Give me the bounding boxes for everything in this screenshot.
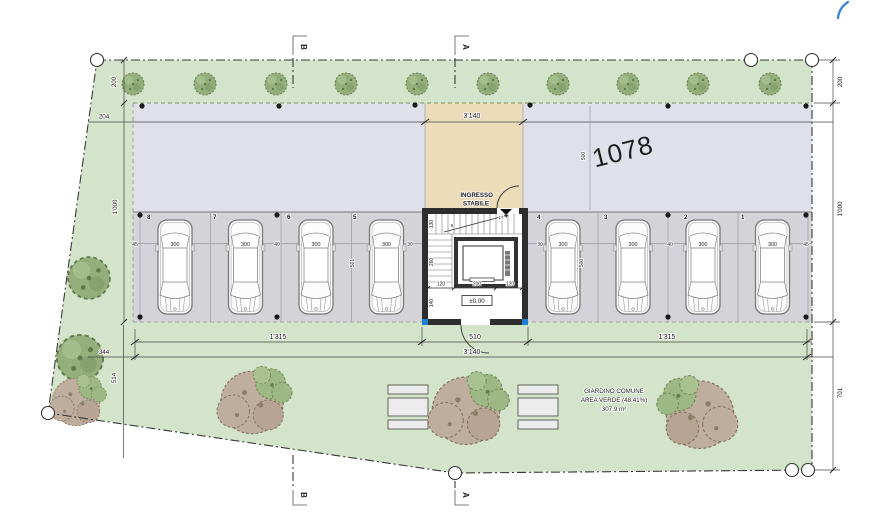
tree-icon xyxy=(194,73,216,95)
tree-icon xyxy=(687,73,709,95)
tree-icon xyxy=(122,73,144,95)
dim-bottom-mid: 510 xyxy=(469,334,481,341)
dim-bay-right: 500 xyxy=(579,259,585,268)
car-icon xyxy=(297,220,336,314)
garden-label-3: 307.9 m² xyxy=(602,406,626,413)
dim-left-depth: 1'000 xyxy=(112,199,119,215)
core-dim-row: 140 xyxy=(429,299,435,308)
stall-number: 1 xyxy=(741,214,745,221)
car-icon xyxy=(226,220,265,314)
dim-bottom-total: 3'140 xyxy=(464,349,481,356)
garden-label-2: AREA VERDE (48.41%) xyxy=(581,397,647,404)
dim-bottom-right: 1'315 xyxy=(659,334,676,341)
elevator-shaft xyxy=(456,239,516,286)
stall-width: 300 xyxy=(768,242,777,248)
gap-dim: 45 xyxy=(132,242,138,248)
core-dim-row: 130 xyxy=(429,220,435,229)
dim-plaza-depth: 500 xyxy=(581,152,587,161)
level-label: ±0.00 xyxy=(469,298,485,305)
gap-dim: 30 xyxy=(407,242,413,248)
tree-icon xyxy=(265,73,287,95)
section-b-bottom: B xyxy=(299,492,308,498)
car-icon xyxy=(684,220,723,314)
tree-icon xyxy=(68,257,110,299)
stall-width: 300 xyxy=(559,242,568,248)
survey-point-se xyxy=(522,319,528,325)
car-icon xyxy=(156,220,195,314)
tree-icon xyxy=(477,73,499,95)
stall-width: 300 xyxy=(699,242,708,248)
stall-number: 8 xyxy=(147,214,151,221)
blue-stroke-artifact xyxy=(838,2,848,18)
stall-width: 300 xyxy=(241,242,250,248)
car-icon xyxy=(544,220,583,314)
stall-number: 2 xyxy=(684,214,688,221)
car-icon xyxy=(614,220,653,314)
tree-icon xyxy=(759,73,781,95)
dim-344: 344 xyxy=(99,349,110,356)
section-a-top: A xyxy=(461,44,470,50)
dim-right-garden: 701 xyxy=(837,387,844,398)
core-dim-col: 200 xyxy=(473,282,482,288)
stall-number: 7 xyxy=(213,214,217,221)
tree-icon xyxy=(406,73,428,95)
dim-right-depth: 1'000 xyxy=(837,201,844,217)
tree-icon xyxy=(57,335,103,381)
dim-right-strip: 200 xyxy=(837,76,844,87)
dim-top-total: 3'140 xyxy=(464,113,481,120)
entrance-label-2: STABILE xyxy=(463,201,489,208)
gap-dim: 45 xyxy=(803,242,809,248)
stall-number: 4 xyxy=(537,214,541,221)
section-b-top: B xyxy=(299,44,308,50)
entrance-label-1: INGRESSO xyxy=(460,192,493,199)
gap-dim: 40 xyxy=(667,242,673,248)
stall-number: 6 xyxy=(287,214,291,221)
dim-bay-left: 501 xyxy=(350,259,356,268)
gap-dim: 30 xyxy=(537,242,543,248)
dim-left-strip: 200 xyxy=(111,76,118,87)
car-icon xyxy=(367,220,406,314)
stall-width: 300 xyxy=(382,242,391,248)
tree-icon xyxy=(617,73,639,95)
section-a-bottom: A xyxy=(461,492,470,498)
stall-number: 3 xyxy=(604,214,608,221)
core-dim-col: 120 xyxy=(506,282,515,288)
car-icon xyxy=(753,220,792,314)
dim-514: 514 xyxy=(111,372,118,383)
survey-point-sw xyxy=(422,319,428,325)
stall-width: 300 xyxy=(171,242,180,248)
tree-icon xyxy=(547,73,569,95)
right-dimensions xyxy=(814,57,840,473)
stall-number: 5 xyxy=(353,214,357,221)
stall-width: 300 xyxy=(312,242,321,248)
core-dim-row: 260 xyxy=(429,258,435,267)
gap-dim: 40 xyxy=(274,242,280,248)
site-plan-page: B A B A 1078 INGRESSO STABILE ±0.00 GIAR… xyxy=(0,0,895,528)
dim-bottom-left: 1'315 xyxy=(270,334,287,341)
garden-label-1: GIARDINO COMUNE xyxy=(584,388,644,395)
tree-icon xyxy=(335,73,357,95)
stall-width: 300 xyxy=(629,242,638,248)
dim-left-offset: 204 xyxy=(99,114,110,121)
stair-step-number: 17 xyxy=(498,215,504,220)
core-dim-col: 120 xyxy=(437,282,446,288)
site-plan-drawing: B A B A 1078 INGRESSO STABILE ±0.00 GIAR… xyxy=(0,0,895,528)
